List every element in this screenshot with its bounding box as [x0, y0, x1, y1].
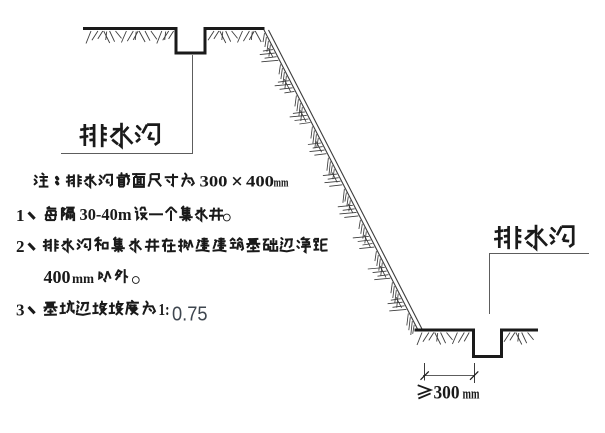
- svg-text:2: 2: [16, 237, 25, 256]
- svg-text:mm: mm: [72, 272, 94, 287]
- svg-text:400: 400: [44, 267, 71, 287]
- svg-text:400: 400: [246, 174, 274, 191]
- svg-text:0.75: 0.75: [172, 303, 208, 326]
- svg-text:300: 300: [200, 174, 228, 191]
- svg-text:30-40m: 30-40m: [80, 205, 132, 224]
- svg-text:300: 300: [434, 384, 460, 404]
- svg-text:1: 1: [16, 206, 25, 225]
- svg-text:1:: 1:: [159, 300, 170, 319]
- svg-text:mm: mm: [274, 176, 289, 190]
- svg-text:3: 3: [16, 301, 25, 320]
- svg-text:mm: mm: [463, 387, 480, 403]
